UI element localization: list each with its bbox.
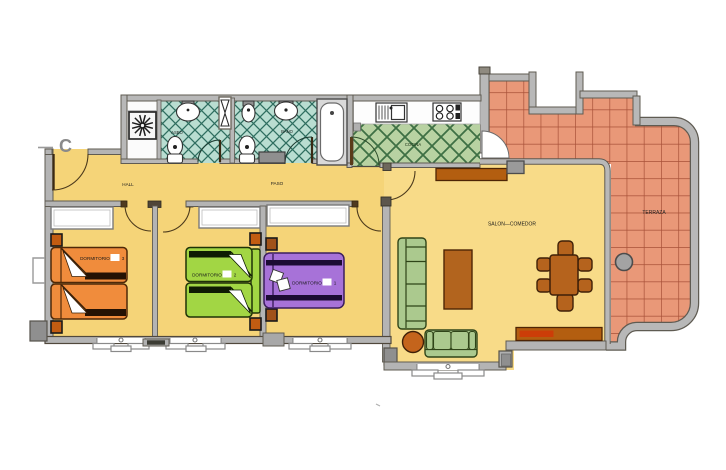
svg-text:DORMITORIO: DORMITORIO (80, 256, 110, 261)
svg-text:2: 2 (234, 273, 237, 278)
svg-text:1: 1 (334, 281, 337, 286)
svg-text:TERRAZA: TERRAZA (642, 210, 666, 216)
svg-text:BAÑO: BAÑO (281, 129, 294, 134)
svg-text:ASEO: ASEO (171, 130, 183, 135)
svg-text:3: 3 (122, 256, 125, 261)
svg-text:PASO: PASO (271, 181, 284, 186)
svg-text:HALL: HALL (122, 182, 134, 187)
svg-text:DORMITORIO: DORMITORIO (292, 281, 322, 286)
svg-text:DORMITORIO: DORMITORIO (192, 273, 222, 278)
svg-text:COCINA: COCINA (405, 142, 421, 147)
svg-text:SALON—COMEDOR: SALON—COMEDOR (488, 222, 536, 228)
svg-text:C: C (59, 136, 72, 156)
